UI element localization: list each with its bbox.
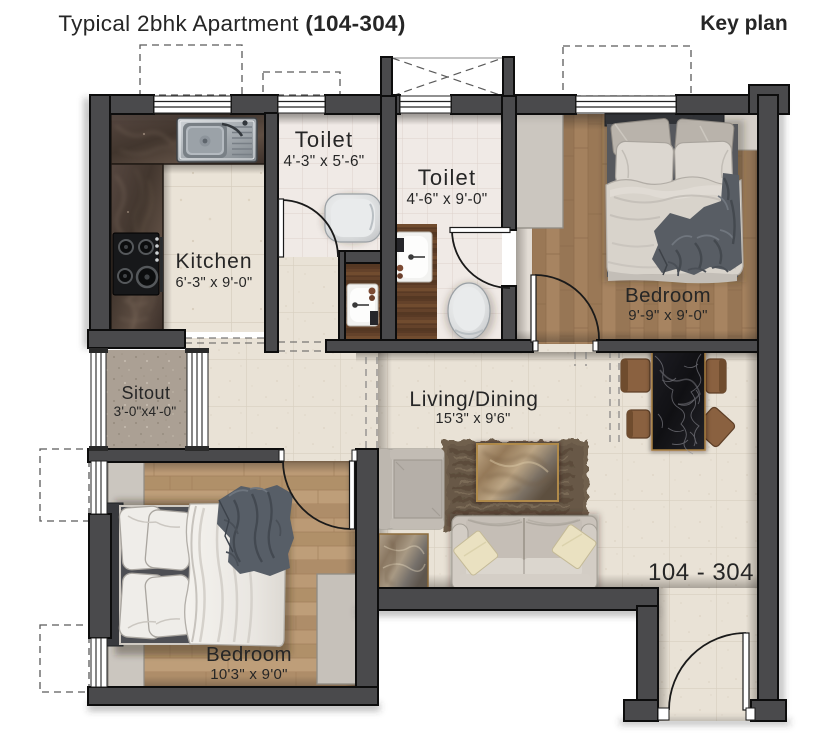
svg-text:4'-6" x 9'-0": 4'-6" x 9'-0"	[407, 191, 488, 208]
svg-text:Living/Dining: Living/Dining	[409, 388, 538, 411]
svg-text:Key plan: Key plan	[700, 12, 788, 35]
svg-text:Typical 2bhk Apartment (104-30: Typical 2bhk Apartment (104-304)	[58, 11, 405, 36]
svg-text:3'-0"x4'-0": 3'-0"x4'-0"	[114, 404, 177, 419]
svg-text:Toilet: Toilet	[418, 165, 477, 190]
svg-text:Toilet: Toilet	[295, 127, 354, 152]
svg-text:4'-3" x 5'-6": 4'-3" x 5'-6"	[284, 153, 365, 170]
svg-text:Kitchen: Kitchen	[175, 250, 252, 273]
svg-text:15'3" x 9'6": 15'3" x 9'6"	[435, 411, 510, 427]
svg-text:Bedroom: Bedroom	[625, 284, 711, 307]
svg-text:Bedroom: Bedroom	[206, 643, 292, 666]
svg-text:6'-3" x 9'-0": 6'-3" x 9'-0"	[176, 275, 253, 291]
svg-text:Sitout: Sitout	[121, 383, 170, 403]
svg-text:9'-9" x 9'-0": 9'-9" x 9'-0"	[628, 307, 707, 324]
svg-text:104 - 304: 104 - 304	[648, 559, 754, 586]
svg-text:10'3" x 9'0": 10'3" x 9'0"	[210, 666, 288, 683]
